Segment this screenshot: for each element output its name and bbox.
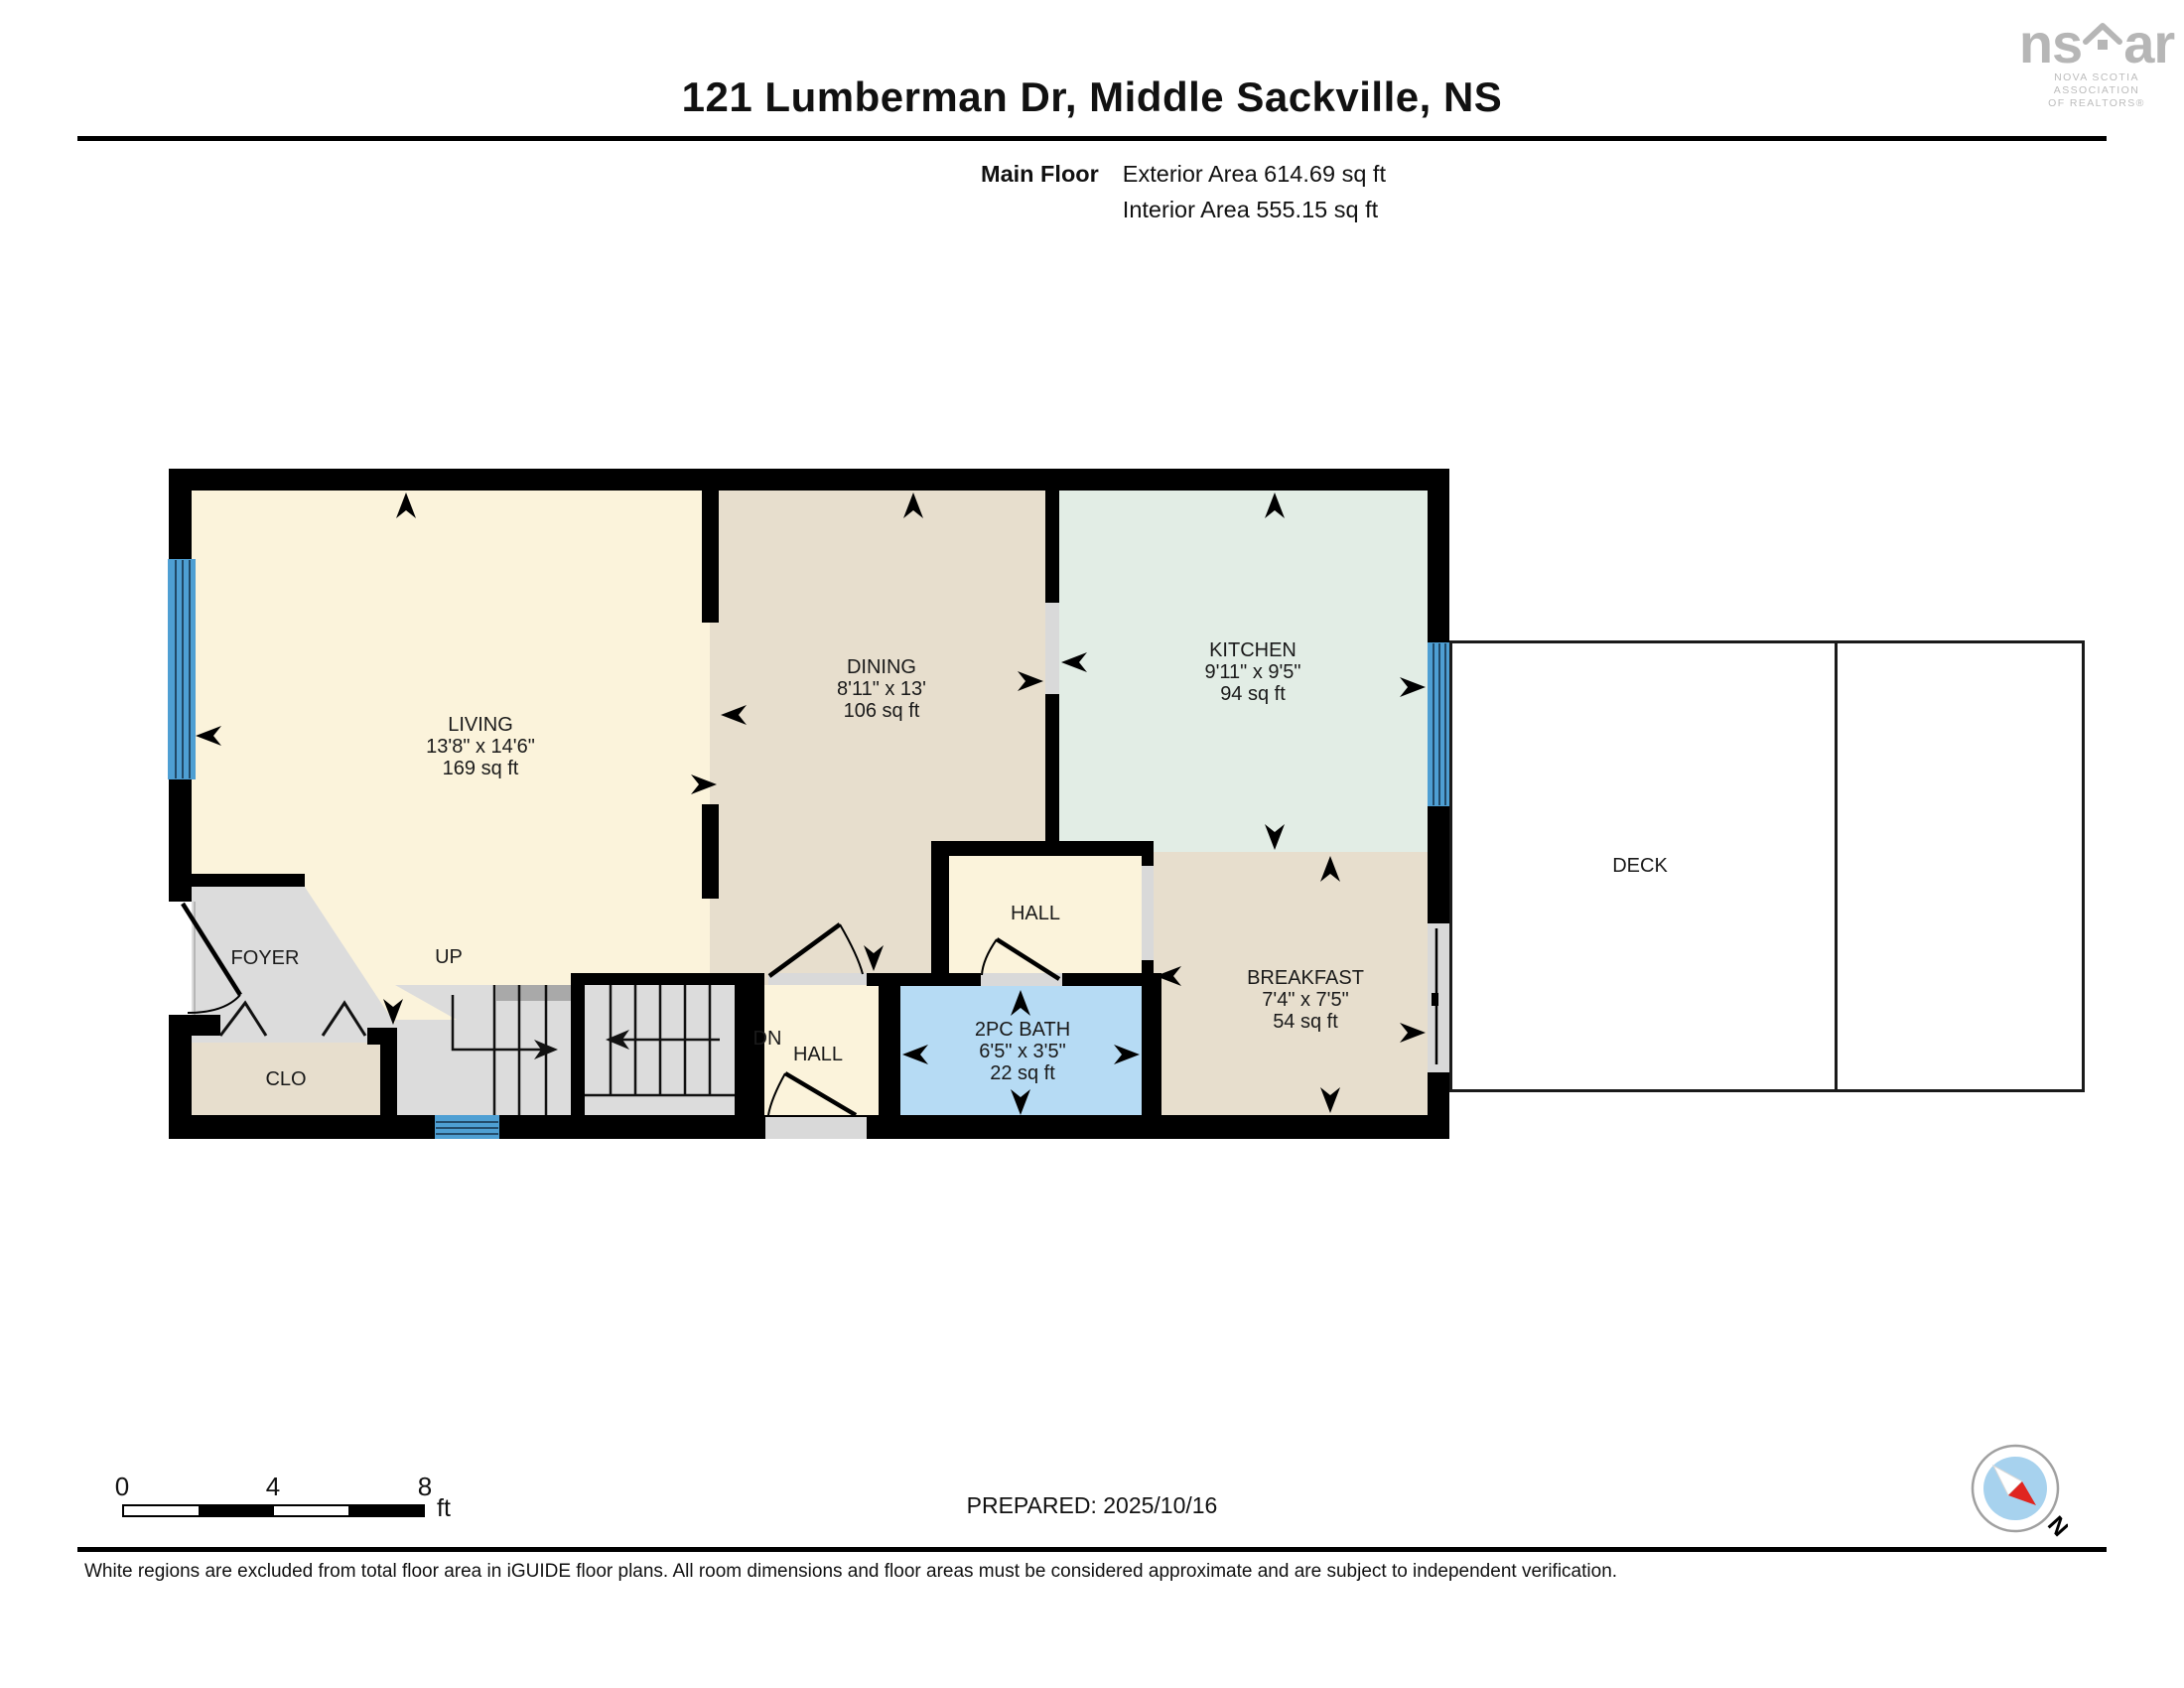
interior-area: Interior Area 555.15 sq ft [1123,192,1386,227]
room-label-breakfast: BREAKFAST7'4" x 7'5"54 sq ft [1247,967,1364,1033]
stairs-floor [395,985,735,1117]
logo-text-ar: ar [2123,20,2174,68]
window-living [168,559,196,779]
room-label-stairs-up: UP [435,946,463,968]
header-divider [77,136,2107,141]
wall-upper-hall-left [931,856,949,973]
wall-exterior-left-lower [169,1015,192,1139]
wall-exterior-top [169,469,1449,491]
stair-edge-cap [496,985,571,1001]
room-label-living: LIVING13'8" x 14'6"169 sq ft [426,714,535,779]
floor-plan-page: 121 Lumberman Dr, Middle Sackville, NS M… [0,0,2184,1688]
wall-hall-stub [867,973,879,986]
wall-exterior-right-lower [1428,1072,1449,1139]
wall-closet-right [380,1043,397,1117]
wall-stairs-top [571,973,735,985]
logo-text-ns: ns [2019,20,2082,68]
wall-dining-kitchen-lower [1045,694,1059,841]
deck-divider-line [1835,643,1838,1089]
wall-exterior-left-mid [169,779,192,902]
room-label-bath: 2PC BATH6'5" x 3'5"22 sq ft [975,1019,1070,1084]
wall-foyer-top [191,874,305,887]
wall-bath-left [879,986,900,1117]
wall-living-dining-upper [702,491,719,623]
logo-subline2: OF REALTORS® [2011,97,2182,110]
footer-divider [77,1547,2107,1552]
wall-upper-hall-top [931,841,1154,856]
opening-bath-door [981,973,1062,986]
opening-back-door [765,1117,867,1139]
room-label-dining: DINING8'11" x 13'106 sq ft [837,656,926,722]
wall-bath-top-right [1062,973,1142,986]
room-label-hall-upper: HALL [1011,903,1060,924]
room-label-closet: CLO [265,1068,306,1090]
house-icon [2083,20,2122,66]
compass-icon: N [1969,1442,2068,1541]
wall-bath-right [1142,973,1161,1117]
opening-sliding-door [1428,923,1449,1072]
wall-exterior-right-mid [1428,806,1449,923]
wall-stair-divider [571,985,585,1117]
wall-closet-stub-left [192,1015,220,1036]
opening-lower-hall-top [768,973,867,985]
wall-dining-kitchen-upper [1045,491,1059,603]
room-label-deck: DECK [1612,855,1668,877]
wall-exterior-right-upper [1428,469,1449,642]
footer-disclaimer: White regions are excluded from total fl… [84,1561,1617,1583]
wall-bath-top-left [879,973,981,986]
nsar-logo: ns ar NOVA SCOTIA ASSOCIATION OF REALTOR… [2011,20,2182,110]
logo-subline1: NOVA SCOTIA ASSOCIATION [2011,71,2182,97]
wall-living-dining-lower [702,804,719,899]
opening-dining-kitchen [1045,603,1059,694]
room-label-stairs-down: DN [753,1028,782,1050]
floor-summary: Main Floor Exterior Area 614.69 sq ft In… [981,156,1386,227]
deck-outline [1449,640,2085,1092]
room-label-kitchen: KITCHEN9'11" x 9'5"94 sq ft [1204,639,1300,705]
window-kitchen [1428,642,1449,806]
prepared-date: PREPARED: 2025/10/16 [0,1492,2184,1519]
room-label-foyer: FOYER [231,947,300,969]
exterior-area: Exterior Area 614.69 sq ft [1123,156,1386,192]
floor-label: Main Floor [981,156,1099,192]
page-title: 121 Lumberman Dr, Middle Sackville, NS [0,73,2184,121]
wall-upper-hall-right-stub-top [1142,856,1154,866]
window-stairs [435,1115,499,1139]
room-label-hall-lower: HALL [793,1044,843,1065]
wall-exterior-left-upper [169,469,192,559]
opening-hall-breakfast [1142,866,1154,960]
